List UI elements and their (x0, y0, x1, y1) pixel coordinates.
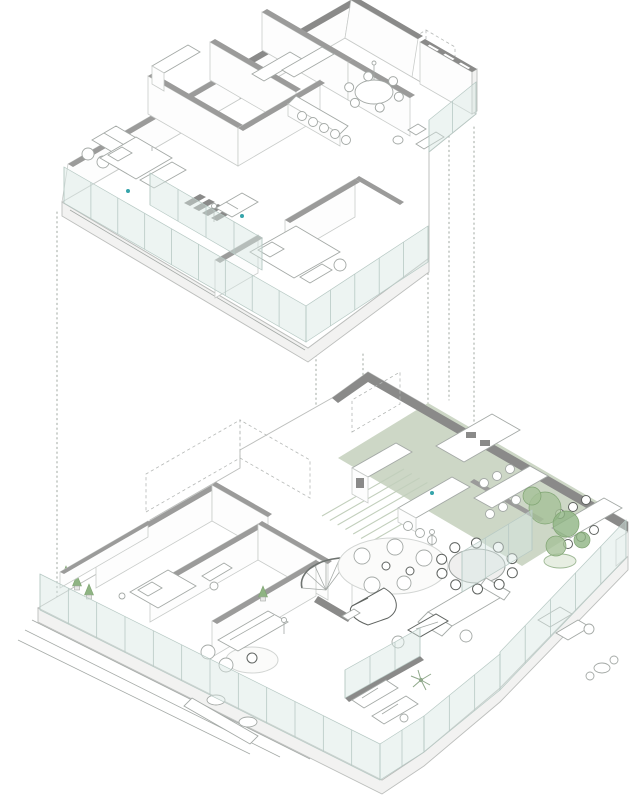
lower-slab-top (38, 372, 628, 780)
chair-icon (450, 543, 460, 553)
chair-icon (437, 554, 447, 564)
chair-icon (473, 584, 483, 594)
tree-icon (546, 536, 566, 556)
chair-icon (494, 579, 504, 589)
chair-icon (507, 568, 517, 578)
upper-floor (62, 0, 477, 362)
fixture-accent (240, 214, 244, 218)
tree-planter (544, 554, 576, 568)
tree-icon (523, 487, 541, 505)
axonometric-drawing (0, 0, 630, 804)
chair-icon (451, 580, 461, 590)
chair-icon (437, 568, 447, 578)
chair-icon (350, 98, 359, 107)
chair-icon (375, 103, 384, 112)
fixture-accent (126, 189, 130, 193)
chair-icon (394, 92, 403, 101)
tree-icon (553, 511, 579, 537)
plant-pot (261, 597, 266, 601)
drawing-svg (0, 0, 630, 804)
lower-floor (18, 372, 628, 794)
chair-icon (364, 72, 373, 81)
chair-icon (345, 83, 354, 92)
chair-icon (389, 77, 398, 86)
plant-pot (75, 586, 80, 590)
tree-icon (574, 532, 590, 548)
